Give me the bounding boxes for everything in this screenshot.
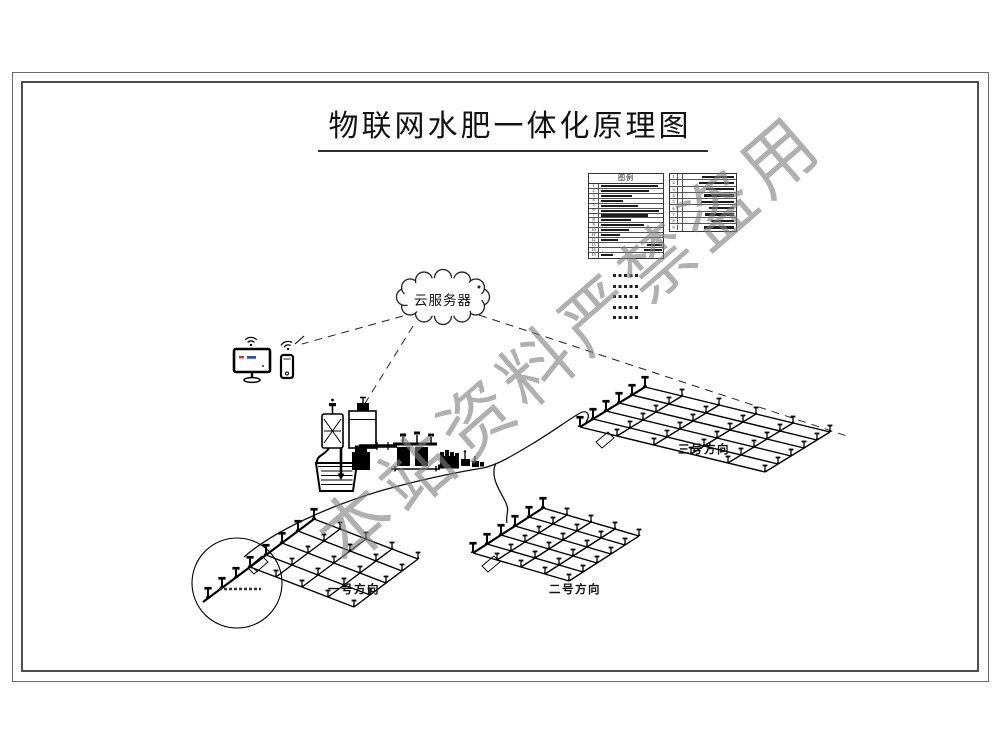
detail-callout bbox=[192, 538, 282, 628]
filter-station bbox=[391, 432, 440, 472]
booster-pump-cluster bbox=[438, 450, 484, 469]
dashed-link-monitor bbox=[302, 316, 403, 344]
valve-box-field1 bbox=[248, 556, 268, 574]
dashed-link-field3 bbox=[479, 315, 847, 436]
dashed-link-station bbox=[364, 326, 413, 405]
field-label-direction-2: 二号方向 bbox=[549, 581, 601, 597]
schematic-art bbox=[0, 0, 1000, 750]
irrigation-field-2 bbox=[469, 498, 641, 581]
monitor-icon bbox=[234, 337, 270, 382]
control-station bbox=[316, 398, 484, 492]
irrigation-field-3 bbox=[576, 377, 832, 472]
cloud-server-label: 云服务器 bbox=[405, 289, 481, 309]
detail-circle bbox=[192, 538, 282, 628]
wireless-links bbox=[302, 315, 847, 436]
wifi-icon bbox=[280, 340, 293, 352]
fertilizer-tank-b bbox=[349, 398, 376, 449]
water-basin bbox=[316, 463, 357, 491]
screen-red-bar bbox=[239, 356, 244, 358]
field-label-direction-3: 三号方向 bbox=[678, 441, 730, 457]
irrigation-field-1 bbox=[203, 509, 420, 607]
field-label-direction-1: 一号方向 bbox=[328, 581, 380, 597]
suction-hose bbox=[317, 448, 329, 462]
screen-blue-bar bbox=[247, 356, 256, 359]
fertilizer-tank-a bbox=[322, 399, 343, 448]
wifi-icon bbox=[245, 337, 257, 346]
phone-icon bbox=[280, 336, 304, 378]
valve-boxes bbox=[248, 432, 614, 574]
cad-drawing-page: 物联网水肥一体化原理图 图例 123456789101112131415 123… bbox=[0, 0, 1000, 750]
pipe-field2 bbox=[494, 463, 508, 523]
